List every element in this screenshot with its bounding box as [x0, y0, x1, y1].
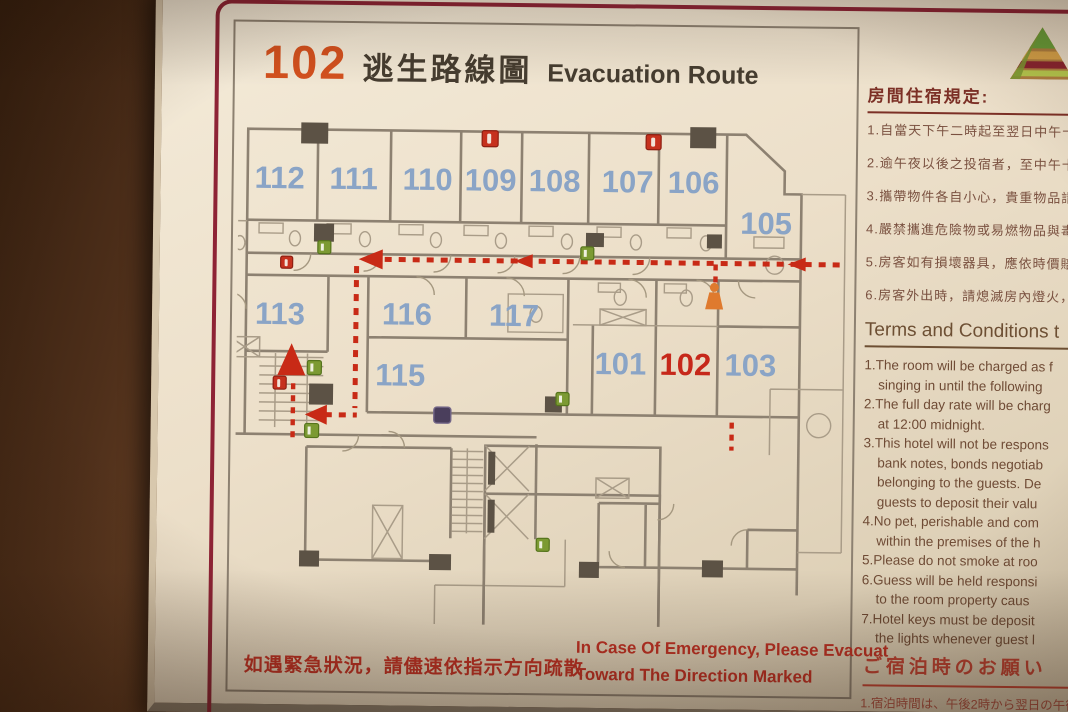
room-label-110: 110	[402, 162, 452, 198]
warning-en-line1: In Case Of Emergency, Please Evacuat	[576, 634, 889, 665]
title-en: Evacuation Route	[547, 59, 758, 91]
room-label-115: 115	[375, 357, 425, 393]
rules-ja-heading: ご宿泊時のお願い	[863, 651, 1068, 689]
elevator-shafts	[476, 446, 660, 629]
warning-en-line2: Toward The Direction Marked	[575, 661, 888, 692]
title-zh: 逃生路線圖	[362, 43, 533, 90]
room-label-109: 109	[465, 162, 517, 198]
room-label-116: 116	[382, 296, 432, 332]
room-label-103: 103	[724, 348, 776, 384]
room-label-101: 101	[594, 346, 646, 382]
rules-zh-item: 3.攜帶物件各自小心，貴重物品請交櫃	[866, 185, 1068, 223]
terms-list: 1.The room will be charged as f singing …	[861, 355, 1068, 652]
evacuation-sign: 102 逃生路線圖 Evacuation Route	[147, 0, 1068, 712]
room-number-title: 102	[263, 34, 348, 90]
sign-title: 102 逃生路線圖 Evacuation Route	[263, 34, 759, 95]
map-panel: 102 逃生路線圖 Evacuation Route	[225, 20, 859, 700]
room-label-107: 107	[602, 164, 654, 200]
room-label-105: 105	[740, 206, 792, 242]
warning-text-en: In Case Of Emergency, Please Evacuat Tow…	[575, 634, 888, 692]
rules-zh-item: 2.逾午夜以後之投宿者，至中午十二時止	[867, 152, 1068, 190]
warning-text-zh: 如遇緊急狀況，請儘速依指示方向疏散	[244, 650, 584, 681]
exit-sign-icons	[303, 240, 594, 551]
hotel-logo-icon	[1010, 27, 1068, 85]
stairs-lower	[451, 448, 483, 533]
rules-zh-item: 5.房客如有損壞器具，應依時價賠償	[865, 251, 1068, 289]
rules-zh-item: 1.自當天下午二時起至翌日中午十二時止	[867, 119, 1068, 157]
rules-zh-item: 6.房客外出時，請熄滅房內燈火，並將	[865, 284, 1068, 322]
room-label-106: 106	[668, 165, 720, 201]
floor-plan: 112 111 110 109 108 107 106 105 113 116 …	[233, 108, 847, 629]
photo-scene: 102 逃生路線圖 Evacuation Route	[0, 0, 1068, 712]
terms-heading: Terms and Conditions t	[865, 319, 1068, 350]
alarm-icon	[434, 407, 451, 423]
floor-plan-drawing: 112 111 110 109 108 107 106 105 113 116 …	[233, 108, 847, 629]
room-label-117: 117	[489, 298, 539, 334]
service-shafts	[372, 306, 646, 561]
rules-ja-list: 1.宿泊時間は、午後2時から翌日の午後12時ま	[860, 692, 1068, 712]
room-label-102-current: 102	[659, 347, 711, 383]
you-are-here-marker	[705, 283, 723, 310]
room-label-112: 112	[254, 160, 304, 196]
room-label-113: 113	[255, 296, 305, 332]
rules-zh-item: 4.嚴禁攜進危險物或易燃物品與毒品	[866, 218, 1068, 256]
rules-panel: 房間住宿規定: 1.自當天下午二時起至翌日中午十二時止 2.逾午夜以後之投宿者，…	[854, 0, 1068, 712]
terms-line: the lights whenever guest l	[861, 628, 1068, 652]
room-label-108: 108	[529, 163, 581, 199]
rules-zh-heading: 房間住宿規定:	[868, 81, 1068, 116]
room-label-111: 111	[329, 161, 378, 197]
rules-zh-list: 1.自當天下午二時起至翌日中午十二時止 2.逾午夜以後之投宿者，至中午十二時止 …	[865, 119, 1068, 322]
exit-sign-glyphs	[306, 243, 587, 548]
